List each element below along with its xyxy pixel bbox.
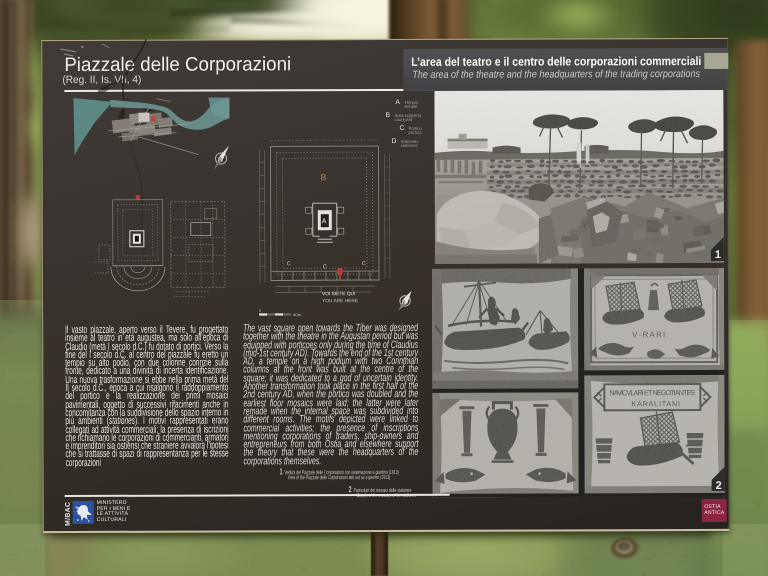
svg-text:C: C	[362, 261, 366, 267]
svg-text:YOU ARE HERE: YOU ARE HERE	[322, 298, 358, 304]
svg-text:0: 0	[259, 309, 261, 313]
svg-text:N: N	[218, 157, 223, 164]
svg-text:40m: 40m	[293, 312, 302, 317]
svg-text:A: A	[322, 218, 327, 225]
svg-text:1: 1	[715, 249, 721, 261]
svg-text:C: C	[323, 264, 327, 270]
svg-text:VOI SIETE QUI: VOI SIETE QUI	[322, 291, 355, 297]
svg-text:B: B	[321, 172, 327, 182]
svg-text:N: N	[402, 299, 406, 306]
svg-text:2: 2	[716, 480, 722, 492]
svg-text:C: C	[287, 261, 291, 267]
